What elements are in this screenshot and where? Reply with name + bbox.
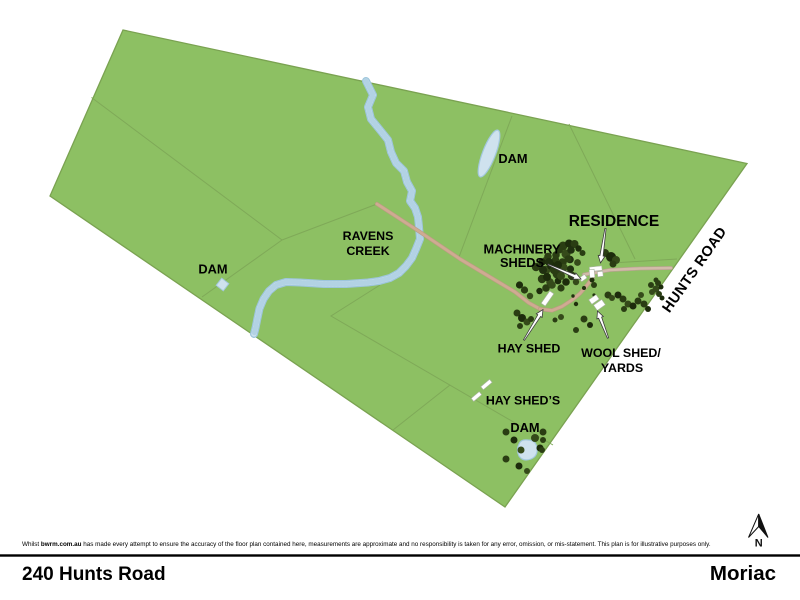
svg-text:SHEDS: SHEDS	[500, 255, 545, 270]
svg-text:DAM: DAM	[510, 420, 539, 435]
svg-text:HAY SHED’S: HAY SHED’S	[486, 394, 560, 408]
svg-text:WOOL SHED/: WOOL SHED/	[581, 346, 661, 360]
svg-text:YARDS: YARDS	[601, 361, 643, 375]
svg-text:HAY SHED: HAY SHED	[498, 342, 561, 356]
svg-text:N: N	[755, 538, 763, 550]
svg-text:RAVENS: RAVENS	[343, 229, 394, 243]
svg-text:240 Hunts Road: 240 Hunts Road	[22, 564, 166, 585]
svg-text:Moriac: Moriac	[710, 562, 776, 585]
svg-text:CREEK: CREEK	[346, 244, 389, 258]
svg-text:RESIDENCE: RESIDENCE	[569, 213, 659, 230]
svg-text:Whilst bwrm.com.au has made ev: Whilst bwrm.com.au has made every attemp…	[22, 541, 711, 548]
svg-text:DAM: DAM	[498, 151, 527, 166]
svg-text:DAM: DAM	[198, 262, 227, 277]
